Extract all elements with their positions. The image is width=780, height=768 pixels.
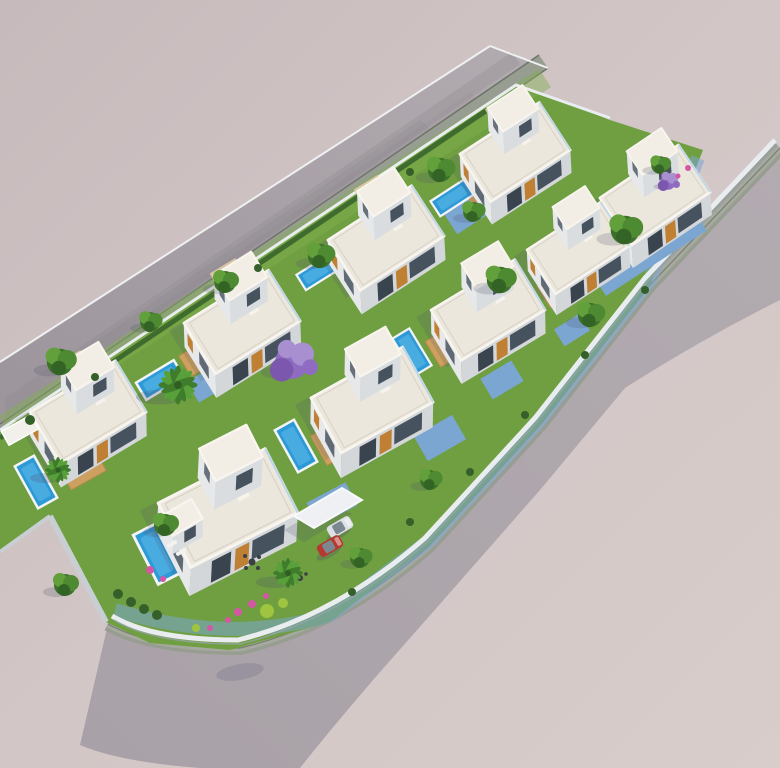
architectural-render — [0, 0, 780, 768]
bare-ground — [0, 0, 780, 768]
render-viewport — [0, 0, 780, 768]
